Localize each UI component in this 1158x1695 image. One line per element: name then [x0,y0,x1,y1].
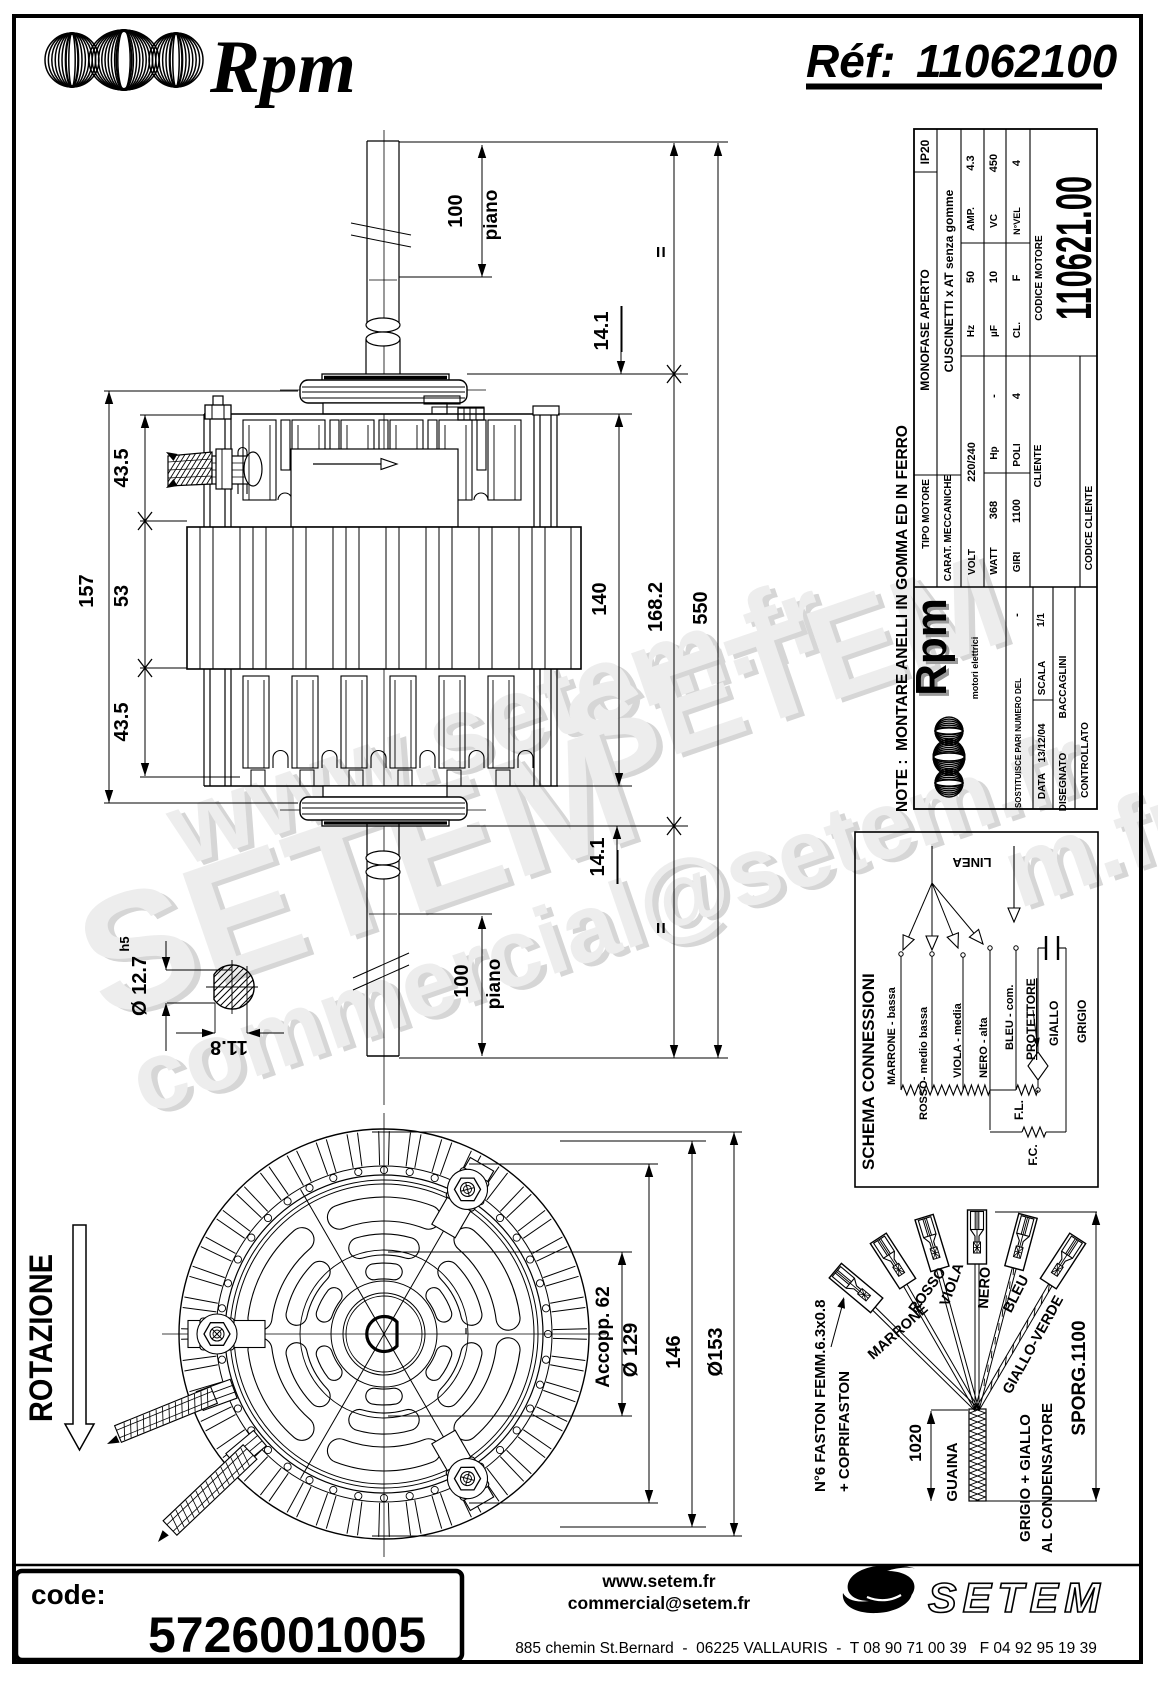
svg-text:SETEM: SETEM [928,1574,1106,1621]
svg-text:Rpm: Rpm [209,26,356,109]
svg-text:F: F [1011,274,1023,281]
svg-text:VOLT: VOLT [967,549,978,575]
svg-text:100: 100 [445,194,467,227]
svg-text:14.1: 14.1 [587,838,609,877]
svg-text:AMP.: AMP. [966,207,977,231]
svg-text:Ø 12.7: Ø 12.7 [129,956,151,1016]
svg-text:-: - [988,394,1000,398]
svg-text:piano: piano [484,959,505,1010]
svg-text:h5: h5 [117,936,132,951]
svg-text:N°VEL: N°VEL [1012,207,1022,235]
svg-text:N°6 FASTON FEMM.6.3x0.8: N°6 FASTON FEMM.6.3x0.8 [812,1300,829,1492]
svg-text:4.3: 4.3 [965,155,977,170]
svg-text:POLI: POLI [1012,443,1023,467]
svg-text:43.5: 43.5 [111,449,133,488]
svg-text:MONOFASE APERTO: MONOFASE APERTO [918,269,932,390]
svg-text:VC: VC [989,214,1000,228]
svg-text:motori elettrici: motori elettrici [970,637,980,700]
svg-text:5726001005: 5726001005 [148,1607,426,1663]
svg-text:CODICE MOTORE: CODICE MOTORE [1034,235,1045,321]
svg-text:450: 450 [988,154,1000,172]
svg-text:100: 100 [451,964,473,997]
svg-text:-: - [1011,613,1023,617]
svg-text:WATT: WATT [989,547,1000,575]
svg-text:=: = [651,246,673,258]
svg-text:Hz: Hz [966,325,977,337]
svg-text:ROSSO- medio bassa: ROSSO- medio bassa [918,1006,930,1120]
svg-text:140: 140 [589,582,611,615]
svg-text:piano: piano [481,190,502,241]
svg-text:CLIENTE: CLIENTE [1033,444,1044,487]
svg-text:SPORG.1100: SPORG.1100 [1069,1320,1090,1435]
svg-text:Rpm: Rpm [907,598,956,696]
svg-text:GRIGIO: GRIGIO [1075,1000,1089,1043]
svg-text:11062100: 11062100 [916,35,1118,87]
svg-text:CARAT. MECCANICHE: CARAT. MECCANICHE [943,474,954,581]
svg-text:MARRONE - bassa: MARRONE - bassa [886,986,898,1085]
svg-text:Ø 129: Ø 129 [620,1323,642,1377]
svg-text:IP20: IP20 [918,139,932,164]
svg-text:1/1: 1/1 [1036,613,1047,627]
svg-text:53: 53 [111,585,133,607]
svg-text:CUSCINETTI x AT senza gomme: CUSCINETTI x AT senza gomme [942,189,956,372]
svg-text:4: 4 [1011,159,1023,166]
svg-text:GRIGIO + GIALLO: GRIGIO + GIALLO [1017,1414,1034,1542]
svg-text:GIALLO: GIALLO [1047,1001,1061,1046]
svg-text:TIPO MOTORE: TIPO MOTORE [921,479,932,549]
svg-text:13/12/04: 13/12/04 [1037,723,1048,762]
svg-text:14.1: 14.1 [591,312,613,351]
svg-text:SOSTITUISCE PARI NUMERO DEL: SOSTITUISCE PARI NUMERO DEL [1014,678,1023,808]
svg-text:AL CONDENSATORE: AL CONDENSATORE [1039,1403,1056,1553]
svg-text:ROTAZIONE: ROTAZIONE [23,1254,59,1422]
svg-text:11.8: 11.8 [210,1036,248,1058]
svg-text:PROTETTORE: PROTETTORE [1024,978,1038,1060]
svg-text:157: 157 [76,574,98,607]
svg-text:F.C.: F.C. [1026,1144,1040,1165]
svg-text:CODICE CLIENTE: CODICE CLIENTE [1084,485,1095,570]
svg-text:VIOLA - media: VIOLA - media [952,1002,964,1078]
svg-text:220/240: 220/240 [966,442,978,482]
svg-text:1100: 1100 [1011,499,1023,523]
svg-text:368: 368 [988,501,1000,519]
svg-text:code:: code: [31,1579,106,1610]
svg-text:110621.00: 110621.00 [1046,176,1102,320]
svg-text:885 chemin St.Bernard - 0622: 885 chemin St.Bernard - 06225 VALLAURIS … [515,1640,1097,1657]
svg-text:DISEGNATO: DISEGNATO [1058,753,1069,812]
svg-text:F.L.: F.L. [1012,1100,1026,1120]
svg-text:BLEU - com.: BLEU - com. [1004,985,1016,1050]
svg-text:SCHEMA CONNESSIONI: SCHEMA CONNESSIONI [859,973,878,1170]
svg-text:Ø153: Ø153 [705,1328,727,1377]
svg-text:GUAINA: GUAINA [944,1442,961,1501]
svg-text:+ COPRIFASTON: + COPRIFASTON [836,1371,853,1492]
svg-text:µF: µF [989,325,1000,337]
svg-text:SCALA: SCALA [1037,661,1048,695]
svg-text:CONTROLLATO: CONTROLLATO [1080,722,1091,798]
svg-text:168.2: 168.2 [645,582,667,632]
svg-text:Hp: Hp [989,446,1000,459]
svg-text:BACCAGLINI: BACCAGLINI [1058,655,1069,718]
svg-text:550: 550 [690,591,712,624]
svg-text:DATA: DATA [1037,773,1048,799]
svg-text:43.5: 43.5 [111,703,133,742]
svg-text:www.setem.fr: www.setem.fr [601,1571,715,1591]
svg-text:1020: 1020 [906,1424,925,1462]
svg-text:CL.: CL. [1012,322,1023,338]
svg-text:10: 10 [988,271,1000,283]
svg-text:commercial@setem.fr: commercial@setem.fr [568,1593,751,1613]
svg-text:NERO: NERO [976,1266,994,1309]
svg-text:NERO - alta: NERO - alta [978,1017,990,1078]
svg-text:Accopp. 62: Accopp. 62 [593,1286,614,1387]
svg-text:146: 146 [663,1335,685,1368]
svg-text:4: 4 [1011,392,1023,399]
svg-text:50: 50 [965,271,977,283]
svg-text:Réf:: Réf: [806,35,895,87]
svg-text:GIRI: GIRI [1012,552,1023,573]
svg-text:=: = [651,922,673,934]
svg-text:LINEA: LINEA [952,855,992,870]
